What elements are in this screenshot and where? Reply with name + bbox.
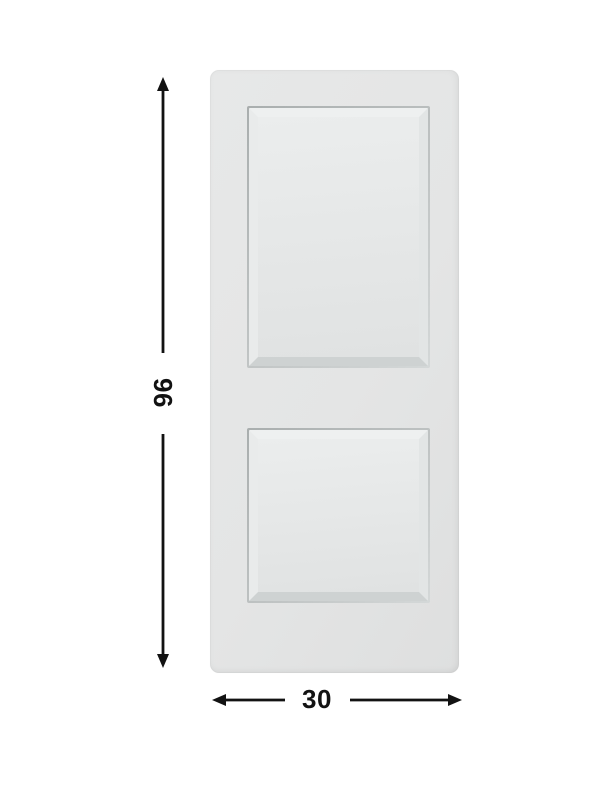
door-lower-panel xyxy=(247,428,430,603)
door-dimension-diagram: 96 30 xyxy=(0,0,600,788)
door-upper-panel xyxy=(247,106,430,368)
lower-panel-face xyxy=(258,439,419,592)
arrowhead-left-icon xyxy=(212,694,226,706)
arrowhead-down-icon xyxy=(157,654,169,668)
arrowhead-up-icon xyxy=(157,77,169,91)
door-image xyxy=(210,70,459,673)
height-dimension-label: 96 xyxy=(138,368,188,418)
width-dimension-label: 30 xyxy=(287,684,347,715)
upper-panel-bevel xyxy=(249,108,428,366)
upper-panel-face xyxy=(258,117,419,357)
arrowhead-right-icon xyxy=(448,694,462,706)
lower-panel-bevel xyxy=(249,430,428,601)
